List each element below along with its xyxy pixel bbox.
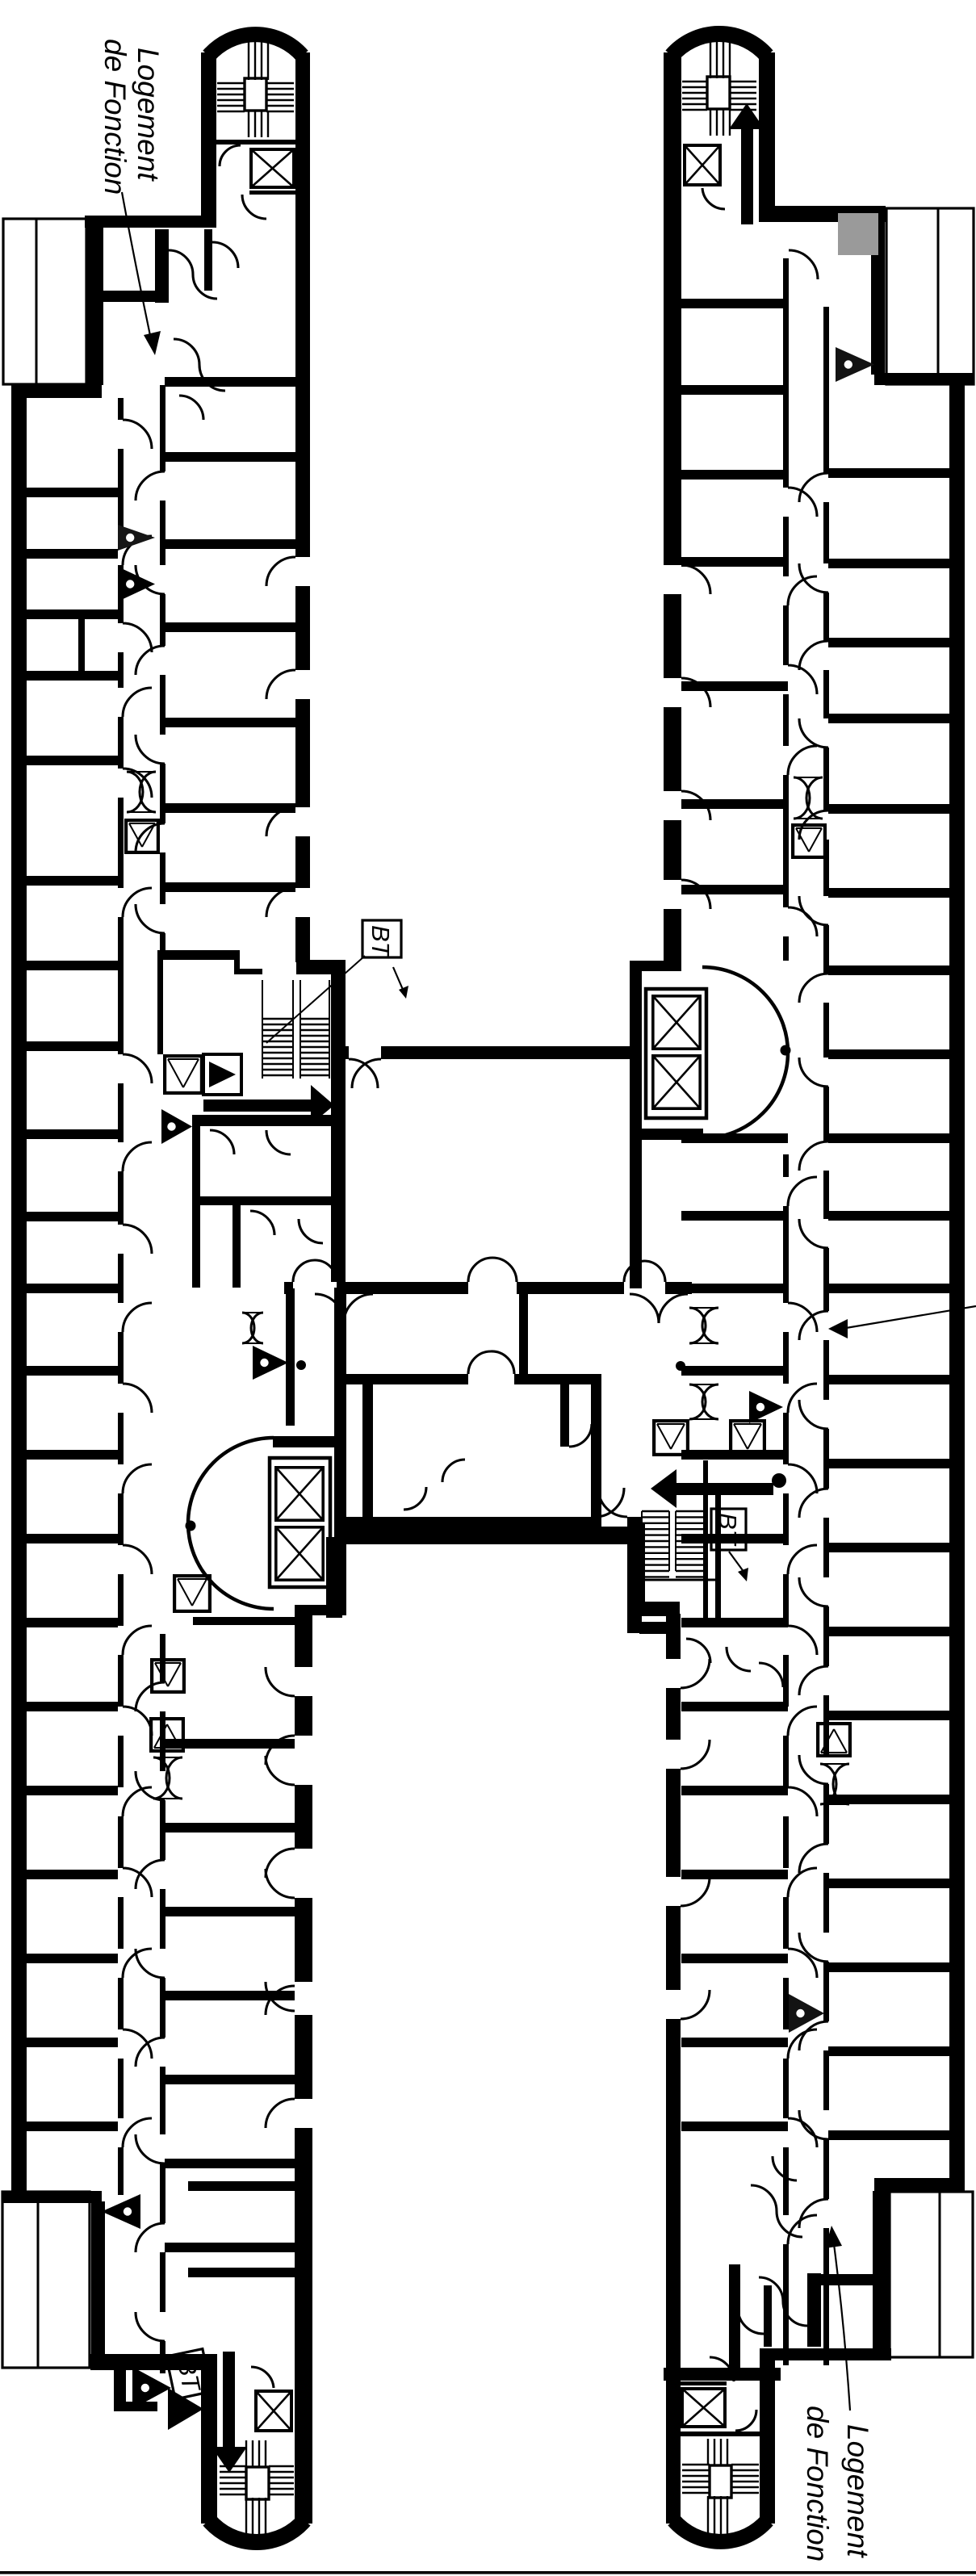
- svg-text:de Fonction: de Fonction: [801, 2406, 834, 2561]
- svg-text:Logement: Logement: [841, 2424, 874, 2558]
- svg-text:de Fonction: de Fonction: [98, 39, 132, 195]
- svg-text:BT: BT: [367, 925, 395, 959]
- svg-text:BT: BT: [714, 1513, 742, 1547]
- svg-text:Logement: Logement: [132, 48, 165, 182]
